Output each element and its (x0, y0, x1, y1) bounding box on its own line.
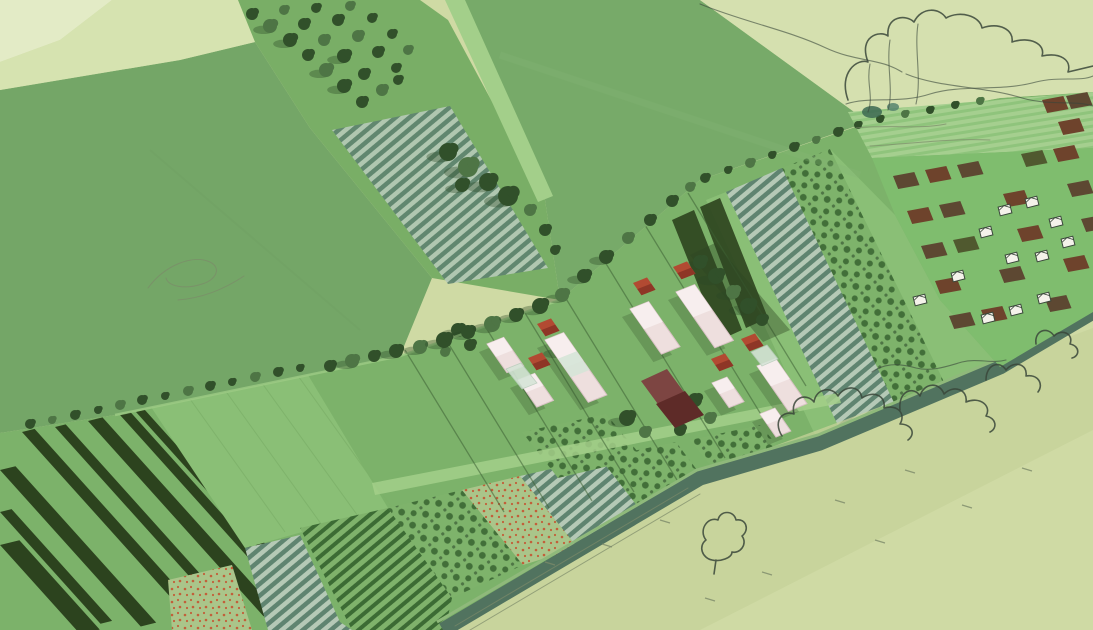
tree-blob (408, 45, 414, 51)
tree-blob (507, 186, 519, 198)
tree-blob (252, 8, 259, 15)
tree-blob (392, 29, 398, 35)
tree-blob (378, 46, 385, 53)
tree-blob (545, 224, 552, 231)
masterplan-illustration (0, 0, 1093, 630)
tree-blob (362, 96, 369, 103)
tree-blob (396, 63, 402, 69)
tree-blob (344, 79, 353, 88)
tree-blob (491, 316, 501, 326)
tree-blob (462, 178, 471, 187)
tree-blob (747, 298, 757, 308)
tree-blob (352, 354, 361, 363)
tree-blob (710, 412, 717, 419)
tree-blob (316, 3, 322, 9)
tree-blob (324, 34, 331, 41)
sketch-bush (862, 106, 882, 118)
tree-blob (750, 158, 756, 164)
tree-blob (487, 173, 498, 184)
tree-blob (672, 195, 679, 202)
tree-blob (838, 127, 844, 133)
tree-blob (816, 136, 821, 141)
tree-blob (188, 386, 194, 392)
tree-blob (358, 30, 365, 37)
tree-blob (705, 173, 711, 179)
tree-blob (308, 49, 315, 56)
tree-blob (715, 268, 725, 278)
tree-blob (690, 182, 696, 188)
tree-blob (278, 367, 284, 373)
tree-blob (30, 419, 36, 425)
tree-blob (364, 68, 371, 75)
tree-blob (628, 232, 635, 239)
tree-blob (562, 288, 571, 297)
tree-blob (372, 13, 378, 19)
tree-blob (695, 393, 704, 402)
tree-blob (300, 364, 305, 369)
tree-blob (955, 101, 960, 106)
tree-blob (447, 143, 458, 154)
tree-blob (470, 339, 477, 346)
tree-blob (905, 110, 910, 115)
tree-blob (284, 5, 290, 11)
tree-blob (210, 381, 216, 387)
tree-blob (338, 14, 345, 21)
tree-blob (530, 204, 537, 211)
tree-blob (930, 106, 935, 111)
tree-blob (555, 245, 561, 251)
tree-blob (396, 344, 405, 353)
tree-blob (626, 410, 636, 420)
tree-blob (606, 250, 615, 259)
tree-blob (980, 97, 985, 102)
tree-blob (728, 166, 733, 171)
tree-blob (304, 18, 311, 25)
tree-blob (75, 410, 81, 416)
masterplan-canvas (0, 0, 1093, 630)
tree-blob (858, 121, 863, 126)
tree-blob (584, 269, 593, 278)
tree-blob (350, 1, 356, 7)
tree-blob (467, 157, 479, 169)
tree-blob (120, 400, 126, 406)
tree-blob (700, 255, 709, 264)
tree-blob (880, 115, 885, 120)
tree-blob (165, 392, 170, 397)
tree-blob (794, 142, 800, 148)
tree-blob (762, 314, 769, 321)
tree-blob (650, 214, 657, 221)
tree-blob (645, 426, 652, 433)
tree-blob (98, 406, 103, 411)
tree-blob (344, 49, 353, 58)
tree-blob (142, 395, 148, 401)
tree-blob (52, 416, 57, 421)
tree-blob (772, 151, 777, 156)
tree-blob (382, 84, 389, 91)
tree-blob (232, 378, 237, 383)
tree-blob (255, 372, 261, 378)
tree-blob (290, 33, 299, 42)
tree-blob (733, 285, 742, 294)
tree-blob (270, 19, 279, 28)
tree-blob (326, 63, 335, 72)
tree-blob (398, 75, 404, 81)
